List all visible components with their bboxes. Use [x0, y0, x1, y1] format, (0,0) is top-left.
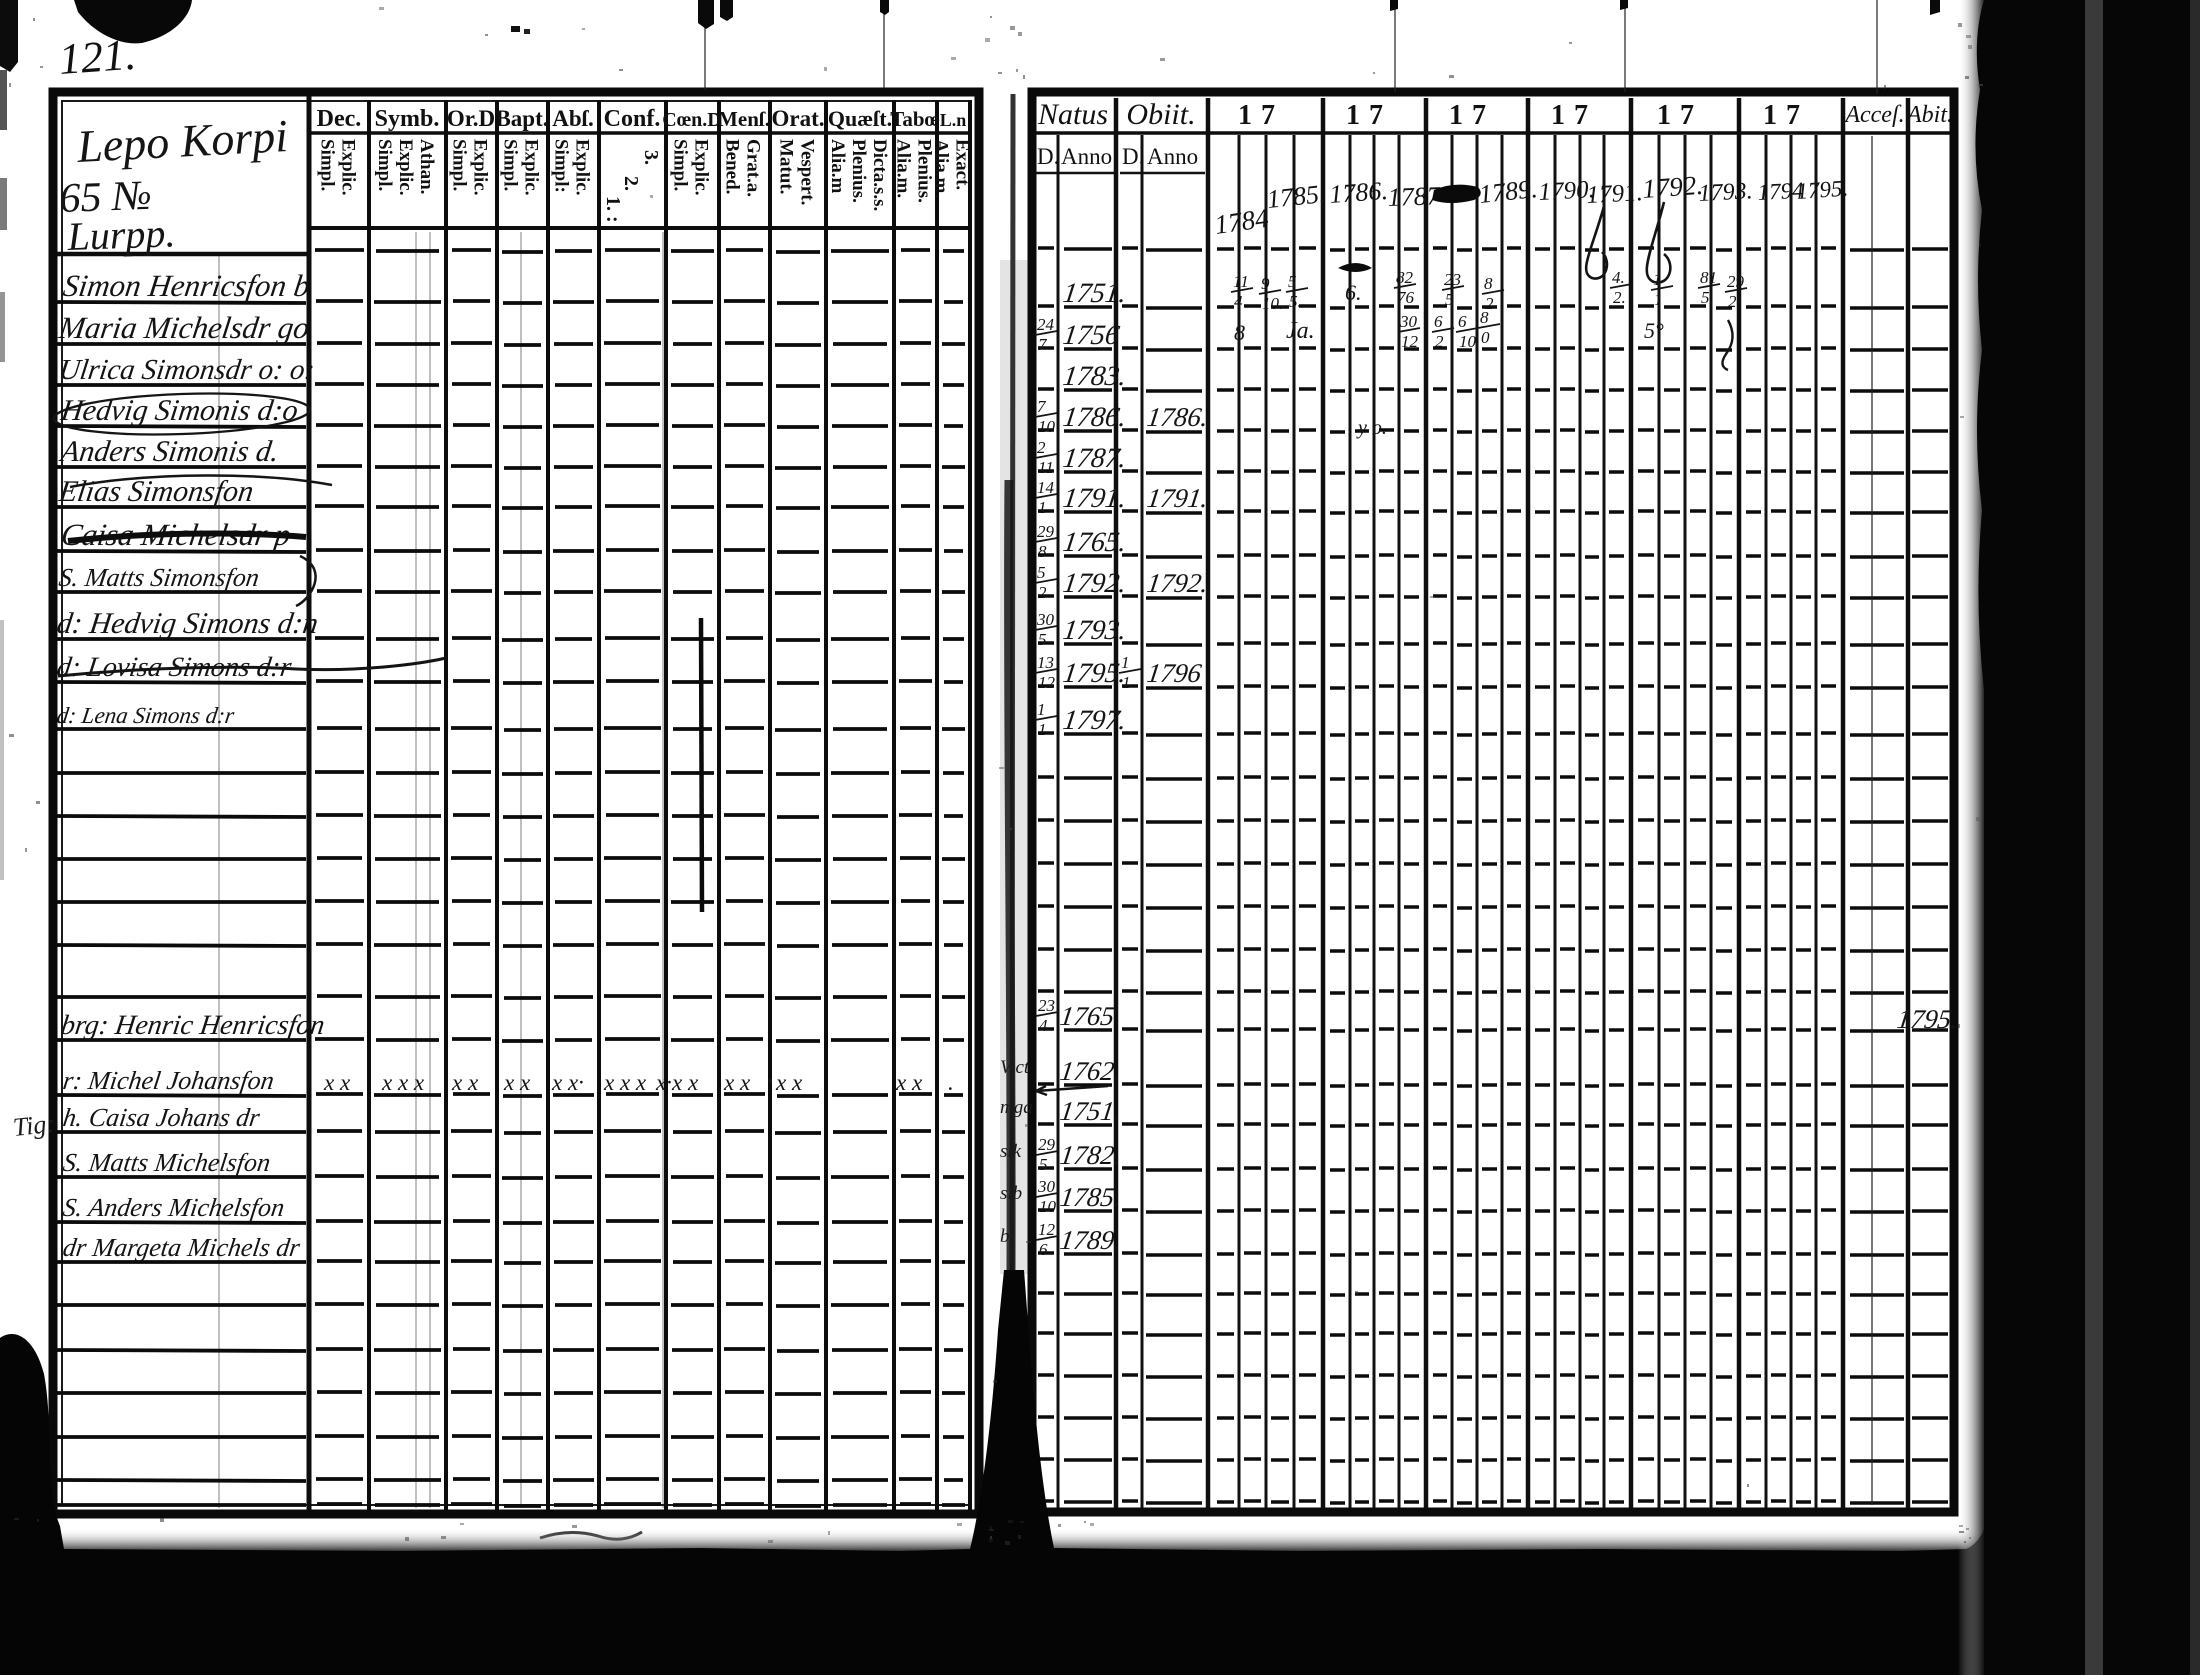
svg-text:1795.: 1795.	[1895, 1004, 1960, 1034]
svg-text:Exact.Alia.m.: Exact.Alia.m.	[931, 139, 973, 198]
svg-text:1765: 1765	[1058, 1001, 1116, 1031]
svg-text:Menſ.: Menſ.	[718, 107, 770, 131]
svg-text:Dec.: Dec.	[317, 106, 362, 132]
svg-text:Vict: Vict	[1000, 1057, 1030, 1078]
svg-text:Symb.: Symb.	[375, 106, 440, 132]
svg-text:9: 9	[1261, 274, 1270, 293]
svg-text:1: 1	[1038, 720, 1047, 739]
svg-text:b: b	[1000, 1226, 1010, 1247]
svg-text:brg: Henric Henricsfon: brg: Henric Henricsfon	[59, 1010, 327, 1041]
svg-text:y o.: y o.	[1356, 417, 1387, 439]
svg-text:S. Matts Simonsfon: S. Matts Simonsfon	[57, 563, 261, 592]
svg-text:Explic.Simpl.: Explic.Simpl.	[317, 139, 359, 195]
svg-text:1793.: 1793.	[1698, 178, 1753, 207]
svg-text:8: 8	[1484, 274, 1493, 293]
svg-text:1792.: 1792.	[1061, 568, 1128, 599]
svg-text:4: 4	[1039, 1016, 1048, 1035]
svg-text:1: 1	[1654, 290, 1663, 309]
svg-text:.: .	[948, 1070, 954, 1095]
svg-text:Maria Michelsdr go: Maria Michelsdr go	[56, 310, 311, 345]
svg-text:x x: x x	[451, 1070, 479, 1095]
svg-text:Obiit.: Obiit.	[1126, 98, 1195, 131]
svg-text:Conf.: Conf.	[604, 106, 661, 132]
svg-text:1785.: 1785.	[1266, 179, 1327, 214]
svg-text:Elias Simonsfon: Elias Simonsfon	[56, 474, 256, 508]
svg-text:1. :: 1. :	[602, 196, 624, 223]
svg-text:2: 2	[1038, 583, 1047, 602]
svg-text:Or.D: Or.D	[447, 106, 495, 131]
svg-text:Simon Henricsfon b: Simon Henricsfon b	[61, 268, 312, 303]
svg-text:10.: 10.	[1262, 294, 1283, 313]
svg-text:x x: x x	[671, 1070, 699, 1095]
svg-text:Athan.Explic.Simpl.: Athan.Explic.Simpl.	[374, 139, 437, 195]
svg-text:h. Caisa Johans dr: h. Caisa Johans dr	[61, 1103, 262, 1132]
svg-text:17: 17	[1763, 100, 1809, 131]
svg-text:x x: x x	[503, 1070, 531, 1095]
svg-text:Abit.: Abit.	[1905, 102, 1953, 128]
svg-text:5.: 5.	[1289, 292, 1302, 311]
svg-text:1782.: 1782.	[1058, 1140, 1123, 1170]
svg-text:2.: 2.	[620, 176, 642, 191]
svg-text:1792.: 1792.	[1641, 170, 1704, 204]
svg-text:Bapt.: Bapt.	[495, 106, 548, 131]
svg-text:x x: x x	[895, 1070, 923, 1095]
svg-text:Anders Simonis d.: Anders Simonis d.	[57, 434, 281, 468]
svg-text:1791.: 1791.	[1145, 483, 1210, 513]
svg-text:2: 2	[1435, 332, 1444, 351]
svg-text:1793.: 1793.	[1061, 615, 1128, 646]
svg-text:10: 10	[1459, 332, 1477, 351]
svg-text:1789.: 1789.	[1478, 174, 1539, 209]
svg-text:3.: 3.	[640, 150, 662, 165]
svg-text:5: 5	[1038, 630, 1047, 649]
svg-text:11: 11	[1233, 272, 1249, 291]
svg-text:d: Hedvig Simons d:n: d: Hedvig Simons d:n	[55, 606, 320, 640]
svg-text:2.: 2.	[1613, 288, 1626, 307]
svg-text:1797.: 1797.	[1061, 705, 1128, 736]
svg-text:1786.: 1786.	[1061, 402, 1128, 433]
svg-text:Tabœ: Tabœ	[890, 107, 939, 131]
svg-text:5: 5	[1037, 563, 1046, 582]
svg-text:x x x: x x x	[381, 1070, 425, 1095]
svg-text:1762.: 1762.	[1058, 1056, 1123, 1086]
svg-text:5: 5	[1701, 288, 1710, 307]
svg-text:17: 17	[1346, 100, 1392, 131]
svg-text:Ulrica Simonsdr o: o:: Ulrica Simonsdr o: o:	[57, 354, 317, 386]
svg-text:Orat.: Orat.	[771, 106, 824, 131]
svg-text:d: Lena Simons d:r: d: Lena Simons d:r	[55, 702, 237, 728]
svg-text:0: 0	[1481, 328, 1490, 347]
svg-text:x·: x·	[655, 1070, 672, 1095]
svg-text:6: 6	[1039, 1240, 1048, 1259]
svg-text:sik: sik	[1000, 1141, 1022, 1162]
svg-text:D.: D.	[1037, 144, 1059, 169]
svg-text:1796: 1796	[1145, 658, 1204, 688]
svg-text:Tig:: Tig:	[12, 1109, 57, 1142]
svg-text:r: Michel Johansfon: r: Michel Johansfon	[61, 1066, 276, 1095]
svg-text:Explic.Simpl:: Explic.Simpl:	[551, 139, 593, 195]
svg-text:x x: x x	[775, 1070, 803, 1095]
svg-text:x x: x x	[723, 1070, 751, 1095]
svg-text:Explic.Simpl.: Explic.Simpl.	[500, 139, 542, 195]
svg-text:Grat.a.Bened.: Grat.a.Bened.	[722, 139, 764, 197]
svg-text:1795.: 1795.	[1796, 175, 1849, 204]
svg-text:1783.: 1783.	[1061, 361, 1128, 392]
svg-text:4.: 4.	[1612, 268, 1625, 287]
svg-text:Anno: Anno	[1061, 144, 1112, 169]
svg-text:76: 76	[1397, 288, 1415, 307]
svg-text:5: 5	[1445, 290, 1454, 309]
svg-text:Abſ.: Abſ.	[552, 106, 594, 131]
svg-text:4: 4	[1234, 292, 1243, 311]
svg-text:D.: D.	[1122, 144, 1144, 169]
svg-text:x x x: x x x	[603, 1070, 647, 1095]
svg-text:Explic.Simpl.: Explic.Simpl.	[449, 139, 491, 195]
svg-text:Lurpp.: Lurpp.	[66, 210, 176, 259]
svg-text:17: 17	[1238, 100, 1284, 131]
svg-text:2: 2	[1037, 438, 1046, 457]
svg-text:Hedvig Simonis d:o: Hedvig Simonis d:o	[58, 393, 300, 427]
svg-text:1795.: 1795.	[1061, 658, 1128, 689]
svg-text:8: 8	[1480, 308, 1489, 327]
svg-text:1786.: 1786.	[1145, 402, 1210, 432]
svg-text:Anno: Anno	[1147, 144, 1198, 169]
svg-text:Cœn.D: Cœn.D	[662, 109, 721, 131]
svg-text:sib: sib	[1000, 1183, 1022, 1204]
svg-text:Quæſt.: Quæſt.	[828, 106, 892, 131]
svg-text:6: 6	[1458, 312, 1467, 331]
svg-text:17: 17	[1551, 100, 1597, 131]
svg-text:5: 5	[1039, 1155, 1048, 1174]
svg-text:12: 12	[1038, 673, 1056, 692]
svg-text:6.: 6.	[1345, 280, 1362, 305]
svg-text:10: 10	[1038, 417, 1056, 436]
svg-text:L.n: L.n	[940, 110, 967, 130]
svg-text:2: 2	[1728, 292, 1737, 311]
svg-text:8: 8	[1038, 542, 1047, 561]
svg-text:8: 8	[1234, 320, 1245, 345]
svg-text:1756: 1756	[1061, 320, 1121, 351]
svg-text:Natus: Natus	[1037, 98, 1108, 131]
svg-text:1765.: 1765.	[1061, 527, 1128, 558]
svg-text:Plenius.Alia.m.: Plenius.Alia.m.	[893, 139, 935, 203]
svg-text:17: 17	[1449, 100, 1495, 131]
svg-text:1791.: 1791.	[1061, 483, 1128, 514]
svg-text:Ja.: Ja.	[1286, 318, 1315, 344]
svg-text:1787.: 1787.	[1061, 443, 1128, 474]
svg-text:5°: 5°	[1644, 318, 1664, 343]
svg-text:1785.: 1785.	[1058, 1182, 1123, 1212]
svg-text:1: 1	[1037, 700, 1046, 719]
svg-text:6: 6	[1434, 312, 1443, 331]
svg-text:1: 1	[1122, 673, 1131, 692]
svg-text:S. Anders Michelsfon: S. Anders Michelsfon	[61, 1193, 286, 1222]
svg-text:1: 1	[1038, 498, 1047, 517]
svg-text:1: 1	[1121, 653, 1130, 672]
svg-text:1791.: 1791.	[1586, 179, 1644, 209]
svg-text:dr Margeta Michels dr: dr Margeta Michels dr	[61, 1233, 302, 1262]
svg-text:1786.: 1786.	[1328, 176, 1388, 209]
svg-text:17: 17	[1657, 100, 1703, 131]
svg-text:12: 12	[1401, 332, 1419, 351]
svg-text:1792.: 1792.	[1145, 568, 1210, 598]
svg-text:1751.: 1751.	[1061, 278, 1128, 309]
svg-text:11: 11	[1038, 458, 1054, 477]
svg-text:1789.: 1789.	[1058, 1225, 1123, 1255]
svg-text:S. Matts Michelsfon: S. Matts Michelsfon	[61, 1148, 272, 1177]
svg-text:1751.: 1751.	[1058, 1096, 1123, 1126]
svg-text:1: 1	[1653, 270, 1662, 289]
svg-text:Acceſ.: Acceſ.	[1843, 102, 1904, 128]
svg-text:x x·: x x·	[551, 1070, 584, 1095]
svg-text:mga: mga	[1000, 1097, 1033, 1118]
svg-text:x x: x x	[323, 1070, 351, 1095]
svg-text:5: 5	[1288, 272, 1297, 291]
svg-text:10: 10	[1039, 1197, 1057, 1216]
svg-text:Explic.Simpl.: Explic.Simpl.	[670, 139, 712, 195]
